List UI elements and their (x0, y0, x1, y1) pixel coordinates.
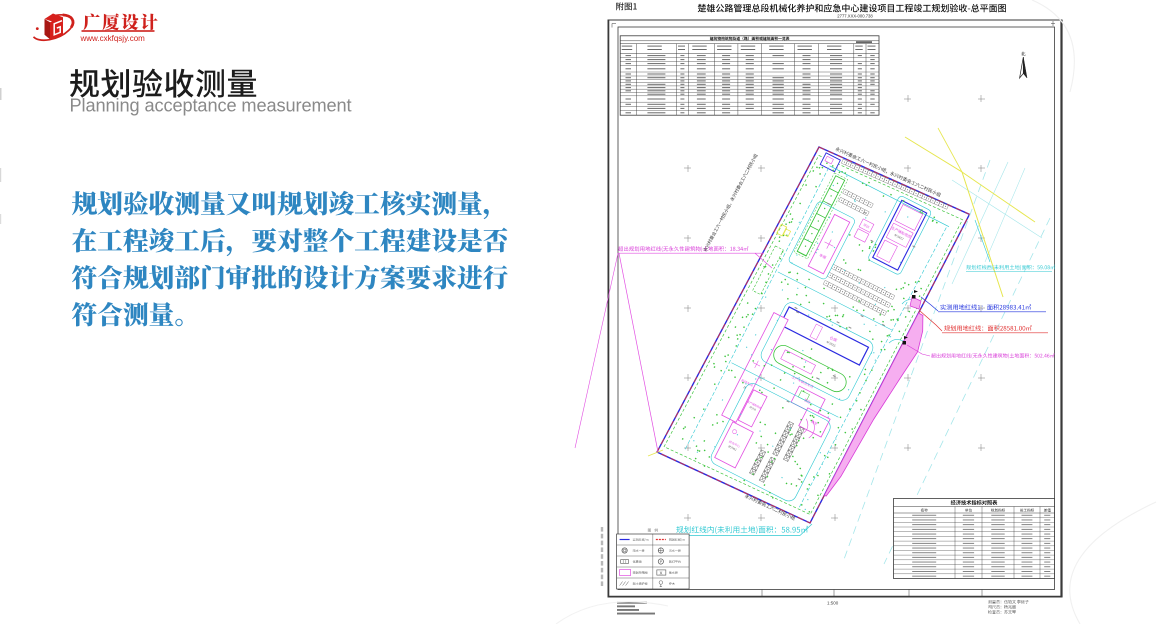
svg-text:www.cxkfqsjy.com: www.cxkfqsjy.com (80, 34, 146, 43)
svg-text:Planning acceptance measuremen: Planning acceptance measurement (70, 96, 352, 116)
svg-text:X: X (659, 570, 662, 575)
svg-text:2777.XXX-000.738: 2777.XXX-000.738 (837, 14, 873, 19)
svg-text:P: P (660, 559, 663, 564)
svg-text:1:500: 1:500 (827, 601, 839, 606)
